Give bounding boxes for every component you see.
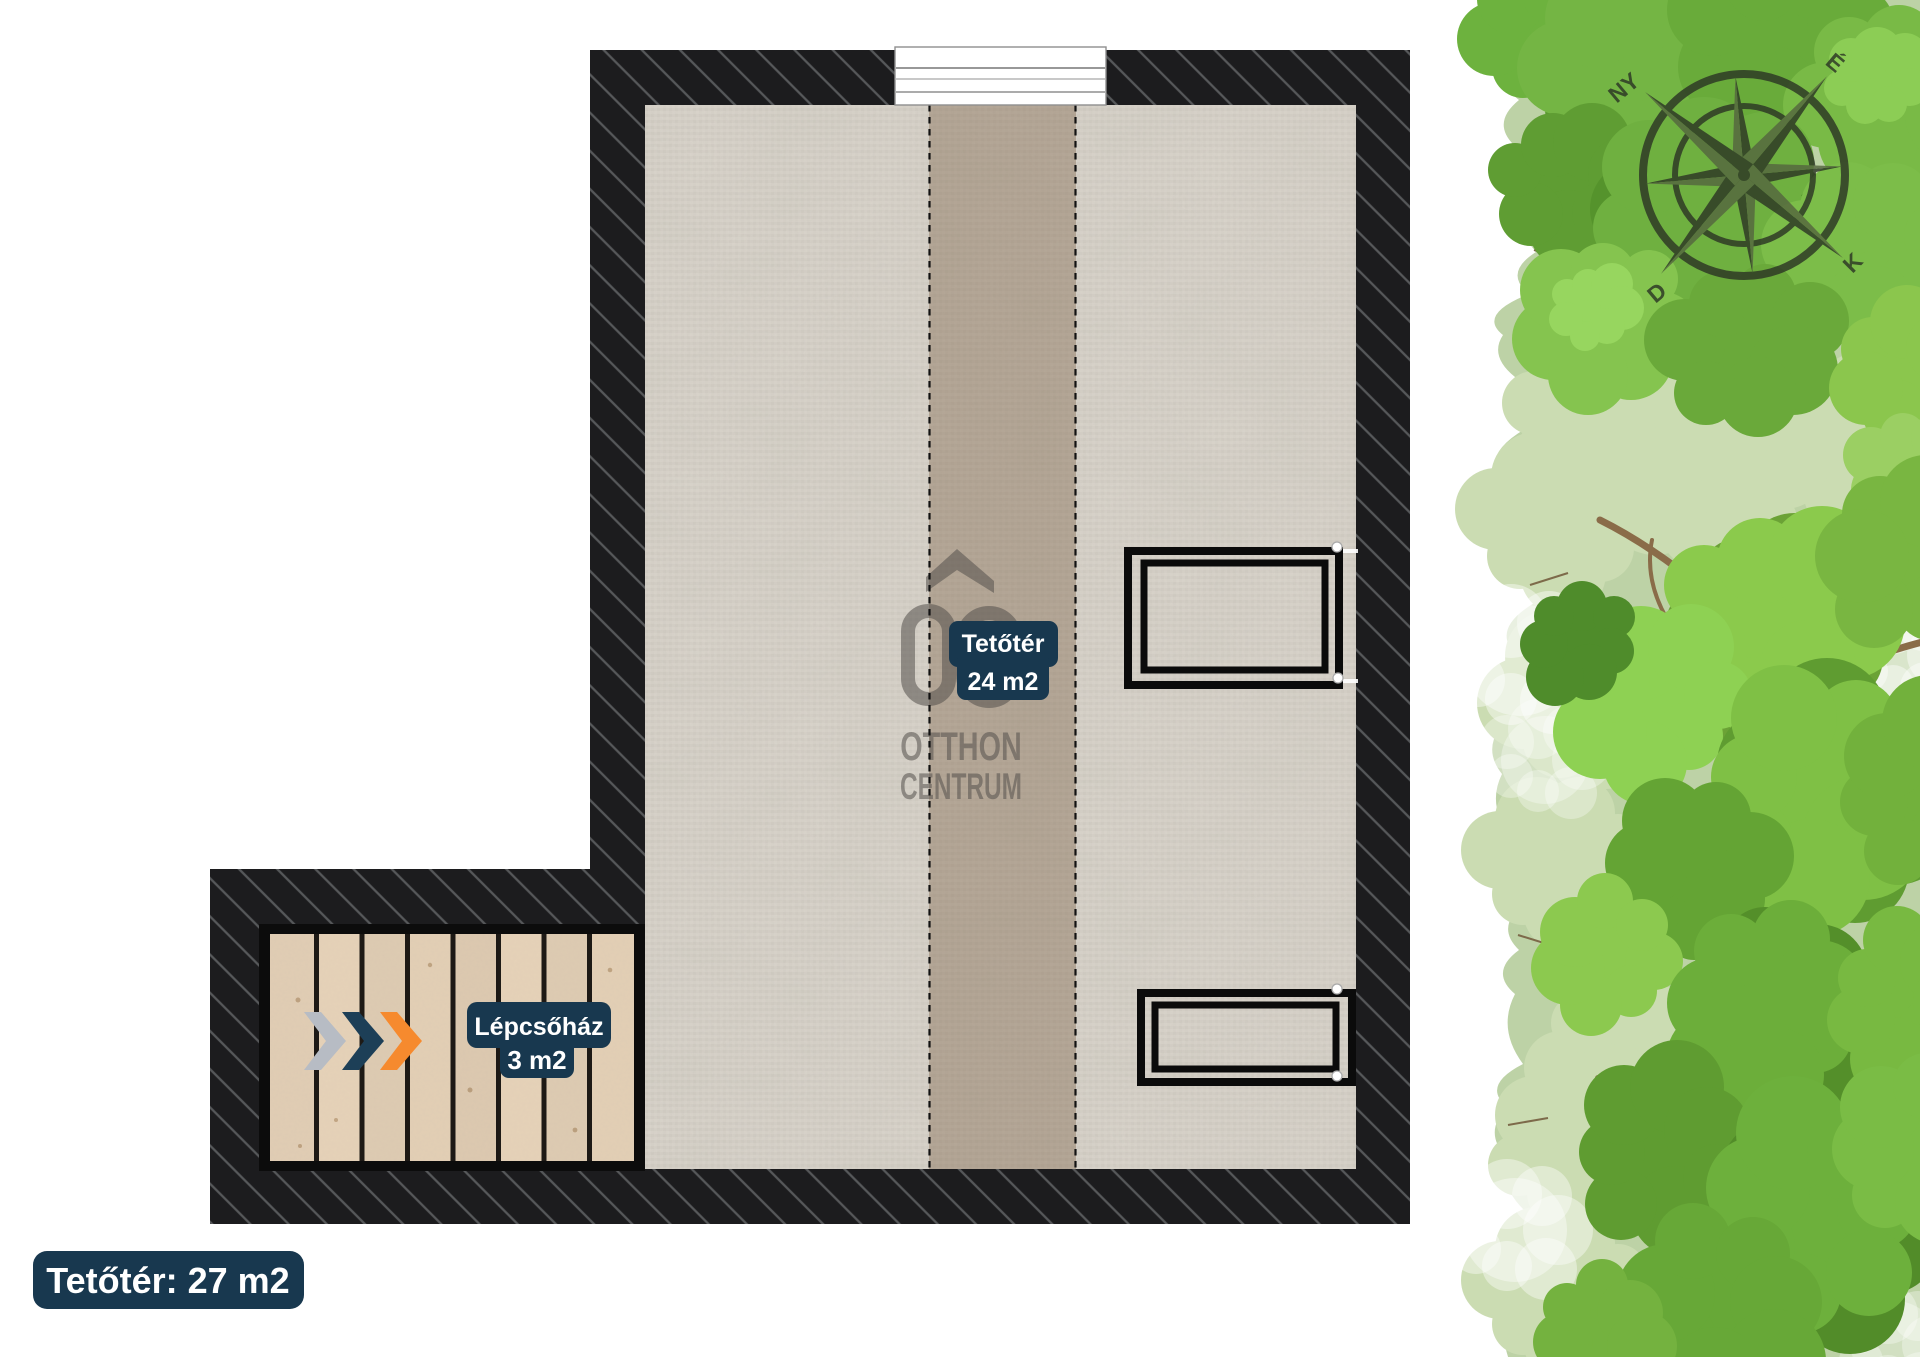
svg-text:Tetőtér: Tetőtér — [962, 630, 1045, 658]
svg-text:Lépcsőház: Lépcsőház — [474, 1013, 603, 1041]
svg-text:Tetőtér: 27 m2: Tetőtér: 27 m2 — [46, 1260, 289, 1301]
svg-text:OTTHON: OTTHON — [900, 724, 1022, 769]
svg-text:24 m2: 24 m2 — [968, 668, 1039, 696]
svg-text:CENTRUM: CENTRUM — [900, 766, 1022, 807]
svg-text:3 m2: 3 m2 — [507, 1045, 566, 1075]
